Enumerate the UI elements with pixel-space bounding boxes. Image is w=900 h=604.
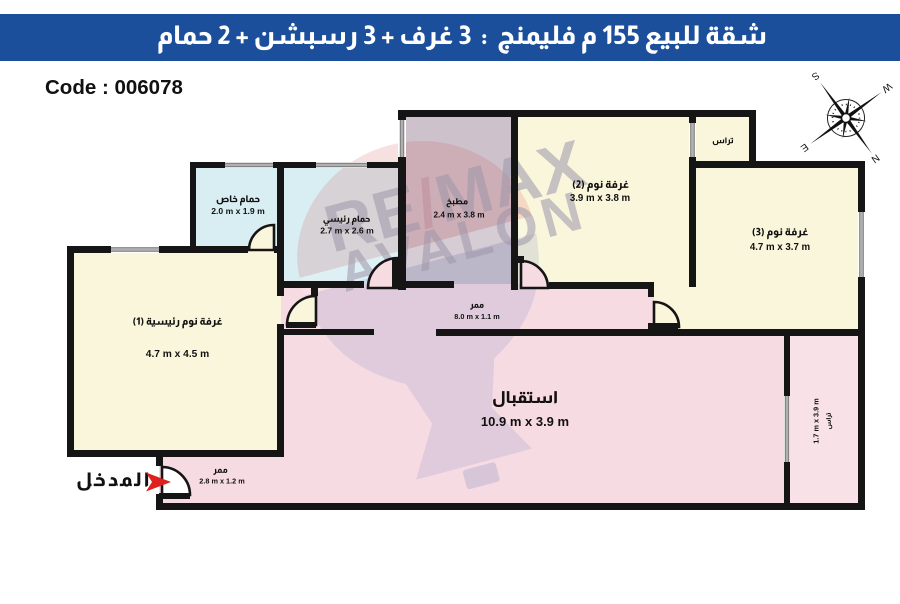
svg-text:4.7 m x 3.7 m: 4.7 m x 3.7 m: [750, 242, 811, 253]
svg-text:2.0 m x 1.9 m: 2.0 m x 1.9 m: [211, 206, 265, 216]
svg-text:3.9 m x 3.8 m: 3.9 m x 3.8 m: [570, 193, 631, 204]
svg-text:2.8 m x 1.2 m: 2.8 m x 1.2 m: [199, 477, 245, 486]
svg-text:1.7 m x 3.9 m: 1.7 m x 3.9 m: [812, 398, 821, 444]
svg-text:10.9 m x 3.9 m: 10.9 m x 3.9 m: [481, 414, 569, 429]
svg-text:4.7 m x 4.5 m: 4.7 m x 4.5 m: [146, 349, 209, 360]
svg-text:Code : 006078: Code : 006078: [45, 76, 183, 99]
svg-text:2.7 m x 2.6 m: 2.7 m x 2.6 m: [320, 226, 374, 236]
svg-text:2.4 m x 3.8 m: 2.4 m x 3.8 m: [434, 211, 485, 220]
svg-text:8.0 m x 1.1 m: 8.0 m x 1.1 m: [454, 312, 500, 321]
